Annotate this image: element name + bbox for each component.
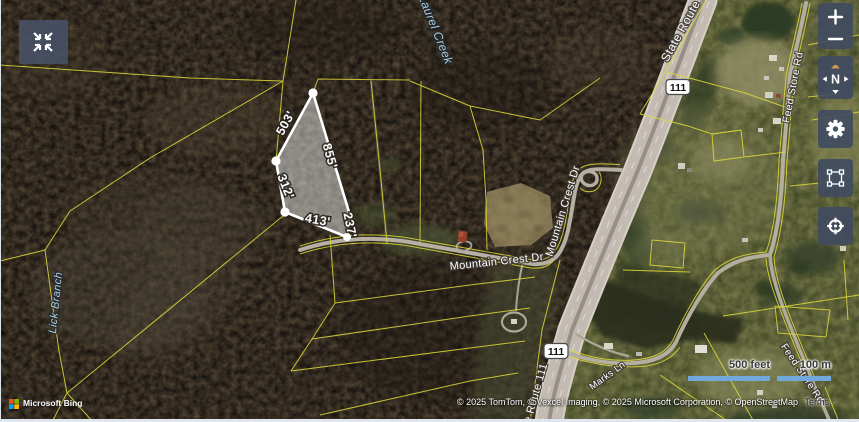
svg-text:N: N <box>831 73 840 87</box>
svg-text:111: 111 <box>548 346 565 358</box>
svg-text:111: 111 <box>670 82 687 94</box>
